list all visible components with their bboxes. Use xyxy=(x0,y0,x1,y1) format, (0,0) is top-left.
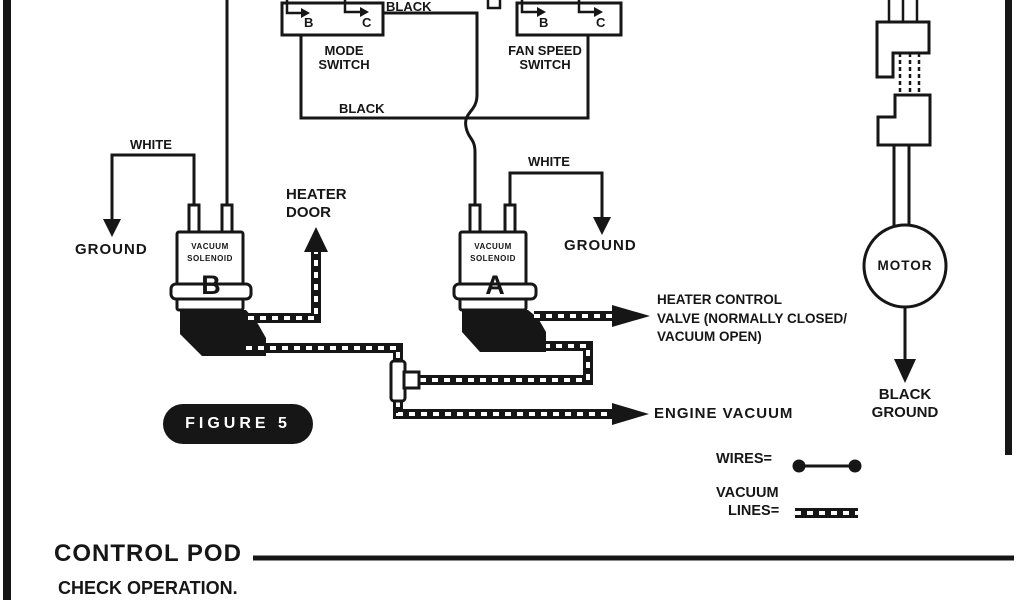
fan-speed-switch-box xyxy=(517,3,621,35)
legend-wire-sample xyxy=(793,460,862,473)
fan-speed-switch-label: FAN SPEEDSWITCH xyxy=(503,44,587,73)
mode-terminal-b: B xyxy=(304,16,313,30)
solenoid-a-manifold xyxy=(462,310,546,352)
motor-ground-arrow-icon xyxy=(894,359,916,383)
fan-terminal-c: C xyxy=(596,16,605,30)
connector-plug-top xyxy=(877,22,929,77)
motor-label: MOTOR xyxy=(864,259,946,274)
white-label-right: WHITE xyxy=(528,155,570,169)
motor-connector xyxy=(877,0,930,226)
engine-vacuum-label: ENGINE VACUUM xyxy=(654,406,793,423)
black-label-bottom: BLACK xyxy=(339,102,385,116)
black-wire-to-solenoid-a xyxy=(383,13,477,205)
wiring-diagram-page: BLACK MODESWITCH FAN SPEEDSWITCH B C B C… xyxy=(0,0,1024,600)
heater-door-arrow-icon xyxy=(304,227,328,252)
mode-switch-label: MODESWITCH xyxy=(313,44,375,73)
white-wire-left xyxy=(112,155,194,221)
left-border xyxy=(3,0,11,600)
heater-door-label: HEATERDOOR xyxy=(286,186,347,222)
check-operation-note: CHECK OPERATION. xyxy=(58,579,238,599)
solenoid-a-tag: A xyxy=(454,271,536,301)
ground-label-right: GROUND xyxy=(564,238,637,255)
engine-vacuum-arrow-icon xyxy=(612,403,649,425)
black-label-top: BLACK xyxy=(386,0,432,14)
mode-terminal-c: C xyxy=(362,16,371,30)
white-label-left: WHITE xyxy=(130,138,172,152)
motor-ground-label: BLACKGROUND xyxy=(860,386,950,422)
top-wire-stub xyxy=(488,0,500,8)
legend-vacuum-label: VACUUMLINES= xyxy=(716,484,779,520)
legend-wires-label: WIRES= xyxy=(716,452,772,468)
fan-terminal-b: B xyxy=(539,16,548,30)
figure-caption: FIGURE 5 xyxy=(163,404,313,444)
white-wire-right xyxy=(510,173,602,219)
solenoid-b-name: VACUUMSOLENOID xyxy=(180,241,240,265)
connector-wires-dashed xyxy=(900,53,919,95)
ground-arrow-right-icon xyxy=(593,217,611,235)
heater-valve-arrow-icon xyxy=(612,305,650,327)
right-border xyxy=(1005,0,1012,455)
control-pod-heading: CONTROL POD xyxy=(54,541,242,567)
ground-label-left: GROUND xyxy=(75,242,148,259)
vacuum-line-heater-door xyxy=(248,252,316,318)
connector-plug-bottom xyxy=(878,95,930,145)
solenoid-b-tag: B xyxy=(171,271,251,301)
ground-arrow-left-icon xyxy=(103,219,121,237)
solenoid-a-name: VACUUMSOLENOID xyxy=(463,241,523,265)
heater-valve-label: HEATER CONTROLVALVE (NORMALLY CLOSED/VAC… xyxy=(657,291,847,347)
vacuum-tee-nub xyxy=(404,372,419,388)
